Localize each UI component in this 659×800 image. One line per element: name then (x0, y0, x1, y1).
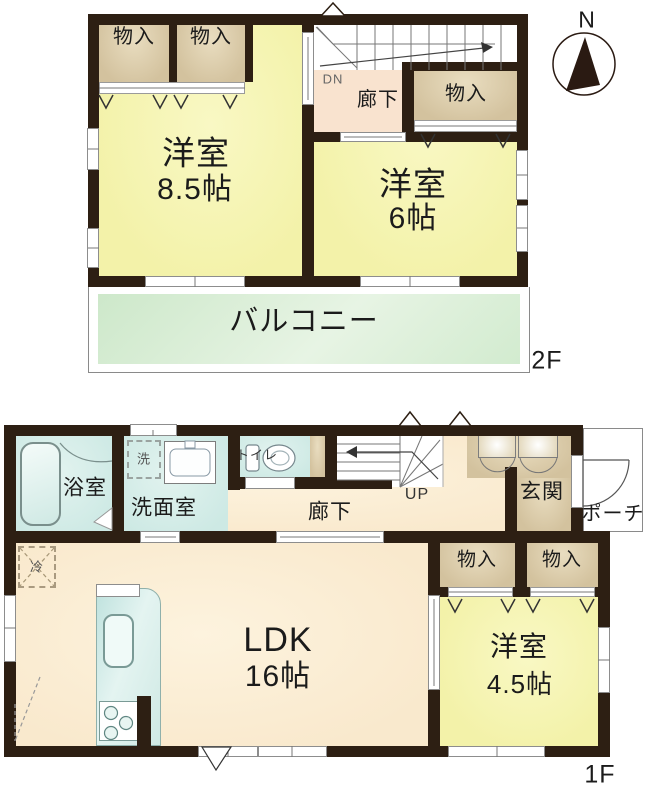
wall (505, 467, 517, 543)
wall (402, 62, 517, 71)
washer-label: 洗 (137, 453, 151, 466)
window (87, 128, 99, 170)
wall (112, 425, 124, 531)
wall-left-1f (4, 425, 16, 757)
compass-north-label: N (578, 9, 596, 32)
room-name: 洋室 (490, 633, 548, 661)
porch-label: ポーチ (582, 504, 645, 524)
room-size: 4.5帖 (487, 671, 553, 697)
bathtub (20, 442, 61, 526)
toilet-label: トイレ (236, 449, 278, 462)
door-opening (245, 477, 295, 489)
closet-label: 物入 (542, 551, 582, 570)
wall (245, 25, 253, 82)
kitchen-counter-cap (96, 584, 140, 597)
wall-break-marks-1f (399, 412, 471, 426)
closet-1f-door-track (530, 587, 595, 597)
hallway-label: 廊下 (308, 502, 352, 523)
room-name: 洋室 (162, 137, 230, 170)
closet-label: 物入 (113, 27, 155, 47)
door-opening (276, 531, 384, 543)
door-opening (140, 531, 180, 543)
closet-label: 物入 (445, 84, 487, 104)
hallway-label: 廊下 (357, 90, 399, 110)
window (516, 205, 528, 252)
kitchen-sink (103, 614, 134, 668)
closet-2f-right-door-track (414, 120, 517, 132)
floor-plan: 物入 物入 DN 廊下 物入 洋室 8.5帖 洋室 6帖 バルコニー 2F N (0, 0, 659, 800)
vanity-sink (164, 441, 216, 484)
closet-1f-door-track (448, 587, 513, 597)
bathroom-label: 浴室 (63, 478, 107, 499)
window (198, 746, 258, 757)
window (130, 424, 177, 436)
ldk (16, 543, 428, 746)
shoe-cabinet-cell (478, 434, 516, 458)
ldk-name: LDK (243, 623, 312, 657)
closet-label: 物入 (190, 27, 232, 47)
ldk-size: 16帖 (245, 662, 311, 692)
door-opening (302, 32, 314, 105)
fridge-label: 冷 (30, 561, 44, 574)
window (87, 228, 99, 268)
window (598, 627, 610, 693)
kitchen-stub-wall (137, 696, 151, 746)
window (516, 150, 528, 200)
entrance-door-opening (571, 455, 583, 508)
wall (402, 70, 414, 132)
floor-label-2f: 2F (531, 349, 562, 374)
window (258, 746, 327, 757)
door-opening (340, 132, 406, 142)
room-size: 6帖 (389, 204, 438, 234)
room-size: 8.5帖 (157, 175, 233, 205)
balcony-label: バルコニー (229, 308, 378, 337)
closet-label: 物入 (457, 551, 497, 570)
window (4, 595, 16, 662)
stairs-dn-label: DN (323, 73, 344, 86)
washroom-label: 洗面室 (131, 498, 197, 519)
wall-top-1f (5, 425, 583, 436)
wall (337, 480, 392, 489)
compass-icon (553, 33, 615, 95)
door-opening (428, 595, 440, 690)
entrance-label: 玄関 (520, 482, 564, 503)
room-name: 洋室 (379, 168, 447, 201)
toilet-shelf (310, 436, 325, 477)
stairs-up-label: UP (405, 487, 429, 503)
window (360, 276, 460, 287)
stove (99, 701, 138, 741)
shoe-cabinet-cell (518, 434, 558, 458)
wall (169, 25, 177, 82)
closet-2f-door-track (99, 82, 245, 94)
floor-label-1f: 1F (584, 763, 615, 788)
window (145, 276, 245, 287)
wall (515, 543, 527, 587)
window (448, 746, 545, 757)
